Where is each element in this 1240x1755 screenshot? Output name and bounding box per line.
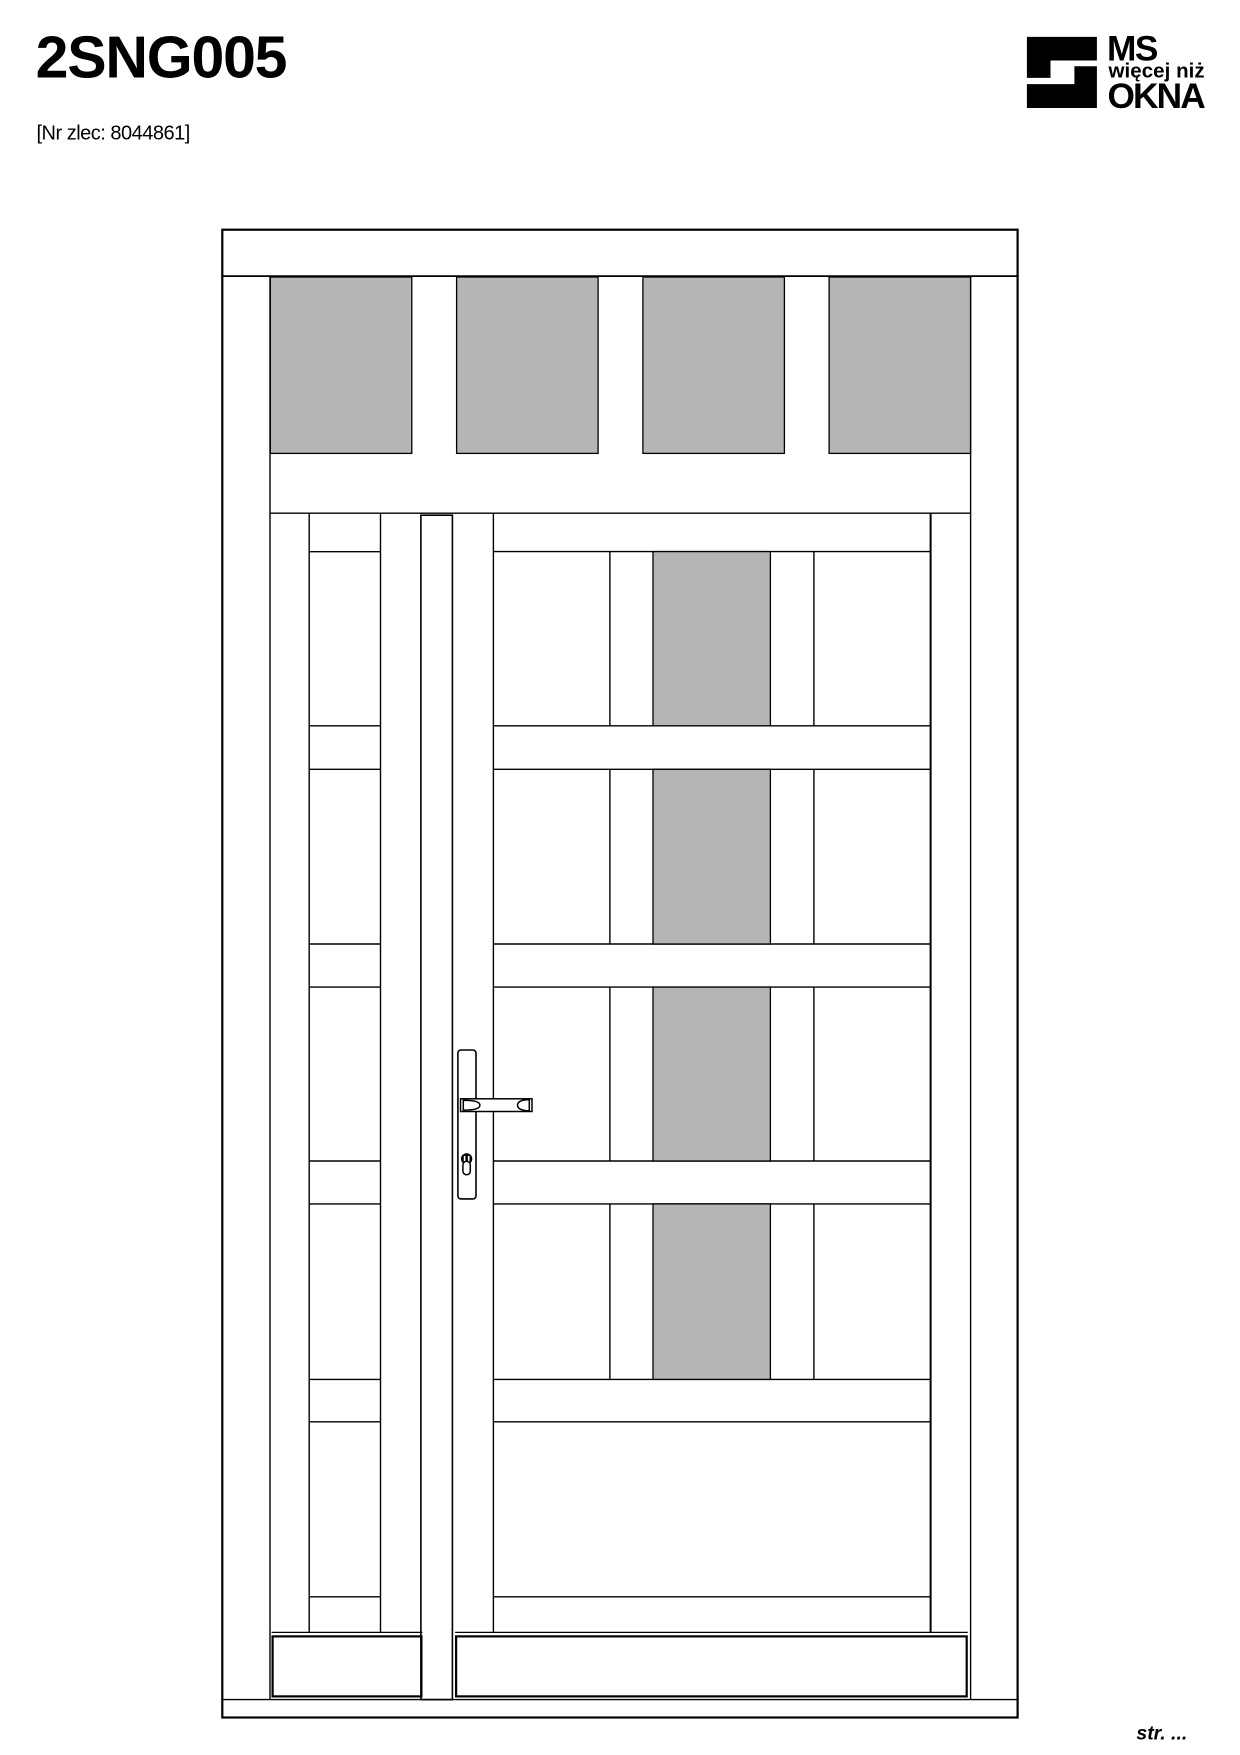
svg-text:[Nr zlec: 8044861]: [Nr zlec: 8044861] [37,123,190,145]
svg-text:OKNA: OKNA [1108,77,1206,116]
svg-text:2SNG005: 2SNG005 [36,25,287,91]
svg-text:str. ...: str. ... [1136,1723,1187,1745]
